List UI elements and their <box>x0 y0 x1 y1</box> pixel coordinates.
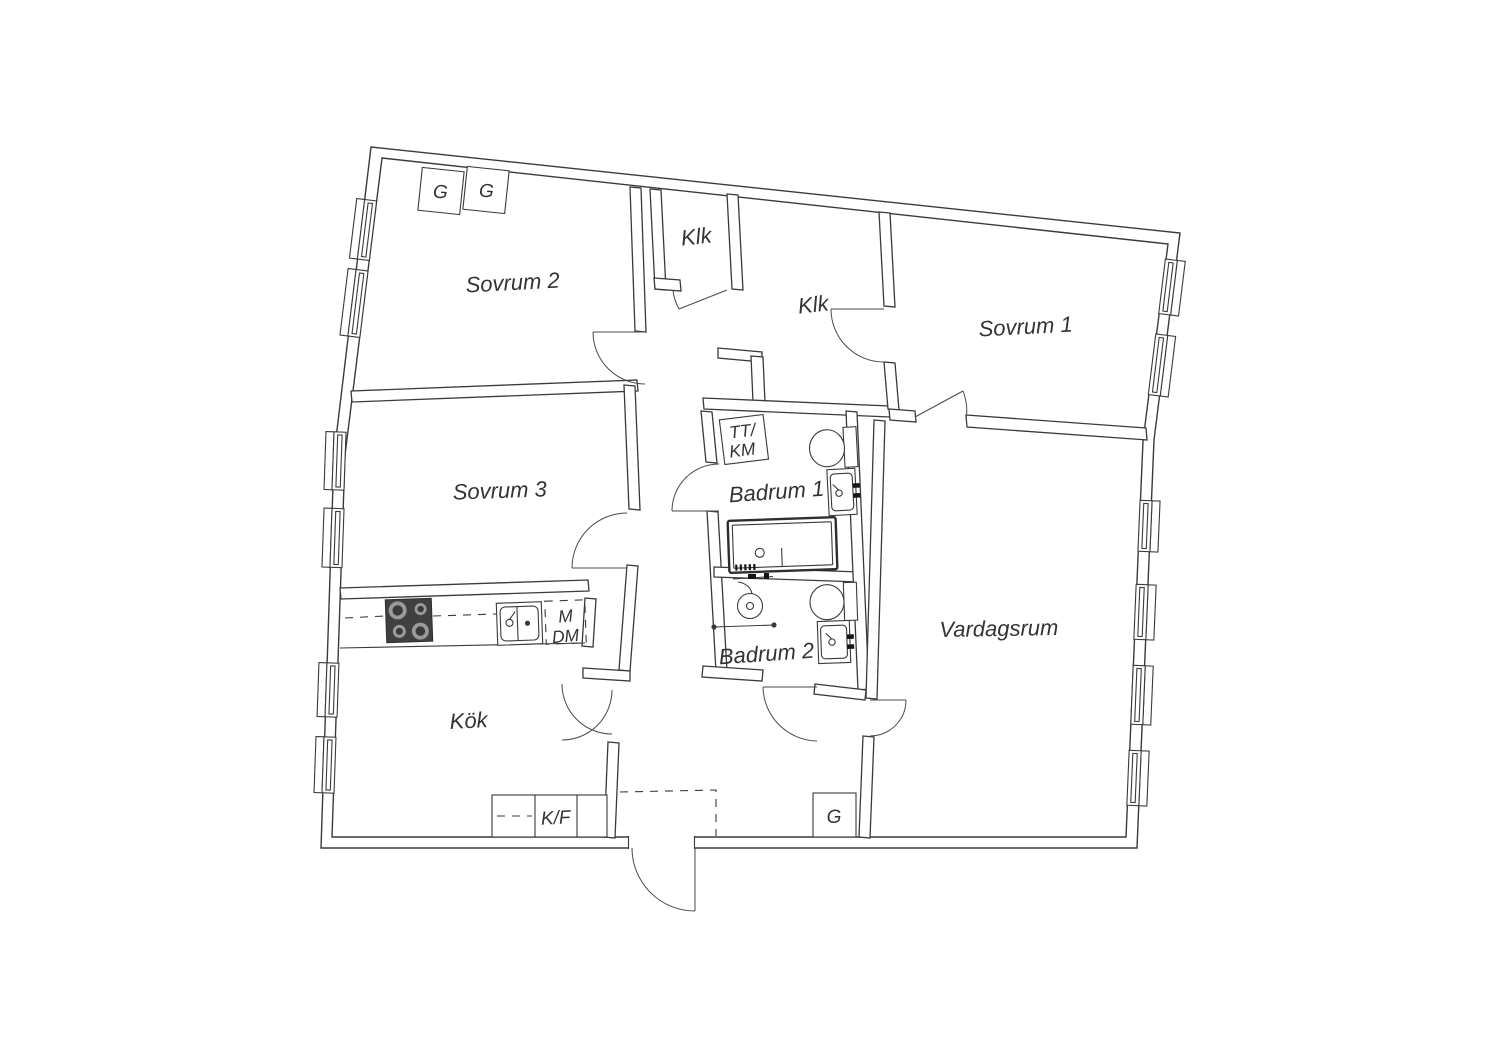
room-label-kok: Kök <box>449 707 489 734</box>
wall-klk2-sovrum1-lower <box>884 362 899 410</box>
door-klk1 <box>673 290 727 309</box>
wall-sovrum2-east <box>630 187 646 332</box>
wall-sovrum1-south-east <box>966 415 1147 440</box>
window-icon <box>324 432 346 491</box>
door-kok <box>562 684 612 740</box>
door-sovrum3 <box>572 513 627 568</box>
floorplan-svg: Sovrum 2 Klk Klk Sovrum 1 Sovrum 3 Badru… <box>0 0 1500 1060</box>
toilet-icon-2 <box>809 582 857 622</box>
wall-klk2-sovrum1-upper <box>879 212 895 307</box>
microwave-label: M <box>557 605 574 626</box>
wall-corridor-east-upper <box>701 411 717 463</box>
room-label-klk-top: Klk <box>680 222 714 250</box>
room-label-sovrum1: Sovrum 1 <box>978 312 1073 342</box>
door-badrum2 <box>763 687 817 741</box>
stove-icon <box>385 598 432 643</box>
dishwasher-label: DM <box>551 625 580 647</box>
wall-kok-stub <box>583 668 630 681</box>
window-icon <box>1148 334 1175 397</box>
wall-vardagsrum-west-lower <box>859 736 874 838</box>
window-icon <box>317 663 339 718</box>
hall-dashed-wardrobe <box>620 790 716 836</box>
window-icon <box>1134 584 1156 640</box>
door-klk2-sovrum1 <box>831 309 884 362</box>
labels: Sovrum 2 Klk Klk Sovrum 1 Sovrum 3 Badru… <box>432 181 1073 830</box>
wall-sovrum3-south <box>340 580 589 599</box>
room-label-badrum1: Badrum 1 <box>728 476 825 508</box>
window-icon <box>1138 500 1160 552</box>
wall-klk1-south <box>654 278 681 291</box>
wall-klk2-south <box>703 398 890 417</box>
door-sovrum1-ajar <box>915 391 967 420</box>
interior-walls <box>340 187 1147 838</box>
room-label-sovrum2: Sovrum 2 <box>465 268 560 298</box>
bathroom-sink-icon-2 <box>817 620 854 663</box>
sovrum2-wardrobes <box>418 166 509 214</box>
wall-sovrum1-south-west <box>889 409 916 422</box>
door-vardagsrum <box>870 700 906 736</box>
wall-klk1-east <box>727 194 743 290</box>
room-label-klk-right: Klk <box>797 290 831 318</box>
wall-sovrum3-east-upper <box>624 385 640 510</box>
wardrobe-label-2: G <box>478 181 494 203</box>
room-label-badrum2: Badrum 2 <box>718 638 815 670</box>
window-icon <box>1127 750 1149 806</box>
bathtub-icon <box>728 517 838 573</box>
room-label-sovrum3: Sovrum 3 <box>452 476 548 504</box>
window-icon <box>340 269 368 338</box>
window-icon <box>314 737 336 794</box>
wardrobe-label-1: G <box>432 182 448 204</box>
shower-icon <box>733 573 773 619</box>
room-label-vardagsrum: Vardagsrum <box>939 615 1058 642</box>
wall-vestibule-step-v <box>751 356 765 403</box>
kitchen <box>340 598 856 837</box>
entrance-opening <box>629 836 695 850</box>
door-sovrum2 <box>593 332 645 384</box>
wall-klk1-west <box>650 189 666 290</box>
door-entrance <box>632 848 695 911</box>
toilet-icon-1 <box>808 427 858 469</box>
door-badrum1 <box>672 464 719 511</box>
wall-sovrum2-south <box>351 380 638 402</box>
fridge-freezer-label: K/F <box>540 807 572 830</box>
window-icon <box>1131 665 1153 725</box>
wall-kok-counter-end <box>582 598 596 647</box>
wardrobe-label-hall: G <box>827 807 842 828</box>
window-icon <box>322 508 344 568</box>
window-icon <box>1159 259 1186 316</box>
window-icon <box>349 199 376 261</box>
wall-sovrum3-east-lower <box>619 565 638 671</box>
laundry-label-line2: KM <box>728 438 757 461</box>
kitchen-sink-icon <box>496 602 542 646</box>
wall-vardagsrum-west-upper <box>866 420 885 699</box>
floorplan-canvas: Sovrum 2 Klk Klk Sovrum 1 Sovrum 3 Badru… <box>0 0 1500 1060</box>
